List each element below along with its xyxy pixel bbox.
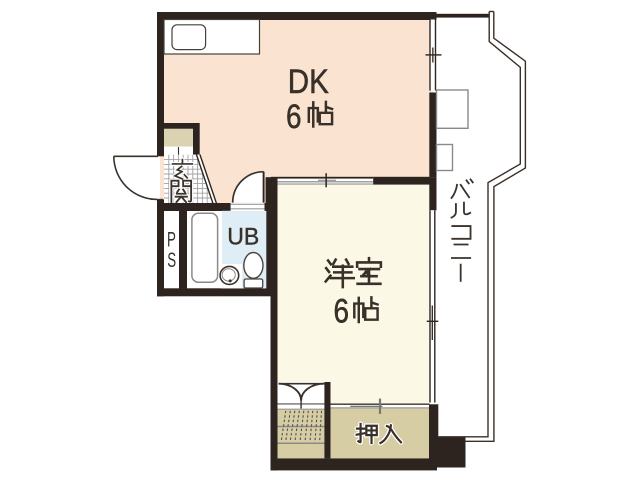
svg-text:UB: UB (227, 223, 259, 251)
svg-text:DK: DK (288, 62, 329, 100)
svg-text:S: S (167, 248, 176, 272)
svg-text:6: 6 (334, 292, 350, 330)
svg-text:6: 6 (286, 97, 302, 135)
